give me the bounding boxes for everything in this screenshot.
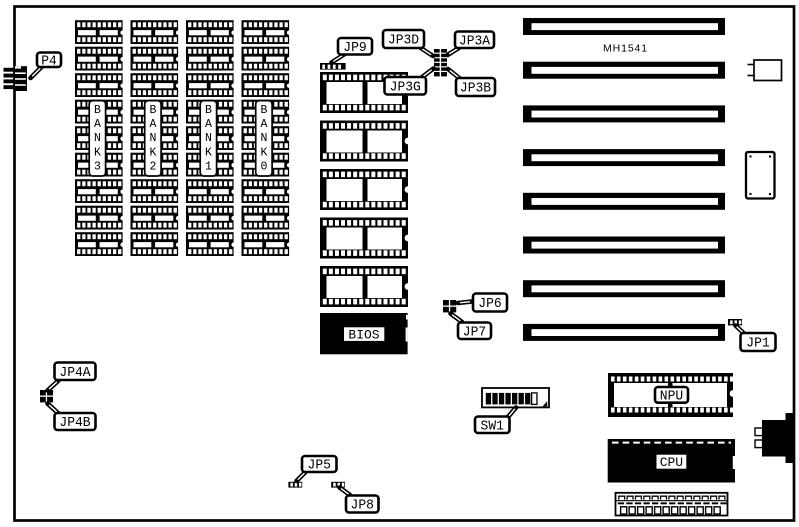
svg-text:B: B	[205, 104, 212, 117]
svg-text:SW1: SW1	[481, 418, 504, 434]
svg-text:CPU: CPU	[660, 455, 683, 470]
svg-text:3: 3	[94, 161, 101, 174]
svg-text:2: 2	[149, 161, 156, 174]
svg-text:JP6: JP6	[478, 296, 501, 312]
svg-text:N: N	[149, 132, 156, 145]
svg-text:JP3D: JP3D	[388, 33, 419, 49]
svg-text:P4: P4	[41, 53, 57, 69]
svg-text:JP3B: JP3B	[460, 81, 491, 97]
svg-text:JP4B: JP4B	[59, 415, 90, 431]
svg-text:K: K	[260, 146, 267, 159]
svg-text:1: 1	[205, 161, 212, 174]
svg-text:JP5: JP5	[308, 458, 331, 474]
svg-text:B: B	[149, 104, 156, 117]
svg-text:A: A	[205, 118, 212, 131]
svg-text:MH1541: MH1541	[603, 43, 648, 55]
svg-text:BIOS: BIOS	[348, 327, 379, 342]
svg-text:N: N	[205, 132, 212, 145]
svg-text:JP3G: JP3G	[390, 79, 421, 95]
svg-text:A: A	[260, 118, 267, 131]
svg-text:B: B	[94, 104, 101, 117]
svg-text:JP4A: JP4A	[59, 365, 91, 381]
svg-text:A: A	[149, 118, 156, 131]
svg-text:JP7: JP7	[463, 324, 486, 340]
svg-text:K: K	[94, 146, 101, 159]
svg-text:JP8: JP8	[351, 498, 374, 514]
svg-text:N: N	[260, 132, 267, 145]
svg-text:K: K	[149, 146, 156, 159]
svg-text:K: K	[205, 146, 212, 159]
svg-text:B: B	[260, 104, 267, 117]
svg-text:N: N	[94, 132, 101, 145]
svg-text:A: A	[94, 118, 101, 131]
svg-text:JP9: JP9	[343, 40, 366, 56]
svg-text:0: 0	[260, 161, 267, 174]
svg-text:NPU: NPU	[660, 388, 683, 404]
svg-text:JP3A: JP3A	[459, 33, 491, 49]
svg-text:JP1: JP1	[746, 336, 769, 352]
